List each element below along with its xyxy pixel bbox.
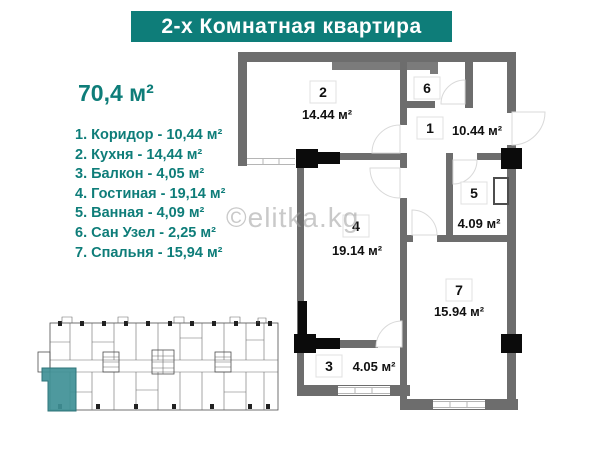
svg-text:3: 3 xyxy=(325,358,333,374)
stair-core xyxy=(215,352,231,372)
room-area-label: 14.44 м² xyxy=(302,107,353,122)
room-number-badge: 1 xyxy=(417,117,443,139)
building-overview-plan xyxy=(38,317,278,411)
room-number-badge: 4 xyxy=(343,215,369,237)
svg-text:2: 2 xyxy=(319,84,327,100)
svg-text:1: 1 xyxy=(426,120,434,136)
window xyxy=(338,386,390,395)
door-arc xyxy=(441,80,465,104)
stair-core xyxy=(103,352,119,372)
room-number-badge: 2 xyxy=(310,81,336,103)
door-arc xyxy=(372,125,400,153)
page: 2-х Комнатная квартира 70,4 м² 1. Коридо… xyxy=(0,0,600,450)
room-number-badge: 6 xyxy=(414,77,440,99)
door-arc xyxy=(370,168,400,198)
structural-columns xyxy=(294,148,522,353)
floor-plan-drawing: 2 6 1 5 4 7 3 xyxy=(0,0,600,450)
stair-core xyxy=(152,350,174,374)
room-number-badge: 3 xyxy=(316,355,342,377)
vent-shaft xyxy=(494,178,508,204)
svg-text:6: 6 xyxy=(423,80,431,96)
room-area-label: 4.05 м² xyxy=(353,359,397,374)
door-arc xyxy=(453,160,477,184)
room-area-label: 4.09 м² xyxy=(458,216,502,231)
room-area-label: 15.94 м² xyxy=(434,304,485,319)
svg-text:5: 5 xyxy=(470,185,478,201)
room-area-label: 19.14 м² xyxy=(332,243,383,258)
room-number-badge: 7 xyxy=(446,279,472,301)
svg-text:7: 7 xyxy=(455,282,463,298)
door-arc xyxy=(412,210,437,235)
highlighted-unit xyxy=(42,368,76,411)
column-ticks xyxy=(58,321,272,409)
svg-text:4: 4 xyxy=(352,218,360,234)
room-number-badge: 5 xyxy=(461,182,487,204)
entrance-door-arc xyxy=(512,112,545,145)
room-area-label: 10.44 м² xyxy=(452,123,503,138)
door-arc xyxy=(376,321,402,347)
walls xyxy=(238,52,518,410)
window xyxy=(433,400,485,409)
window xyxy=(247,157,295,166)
